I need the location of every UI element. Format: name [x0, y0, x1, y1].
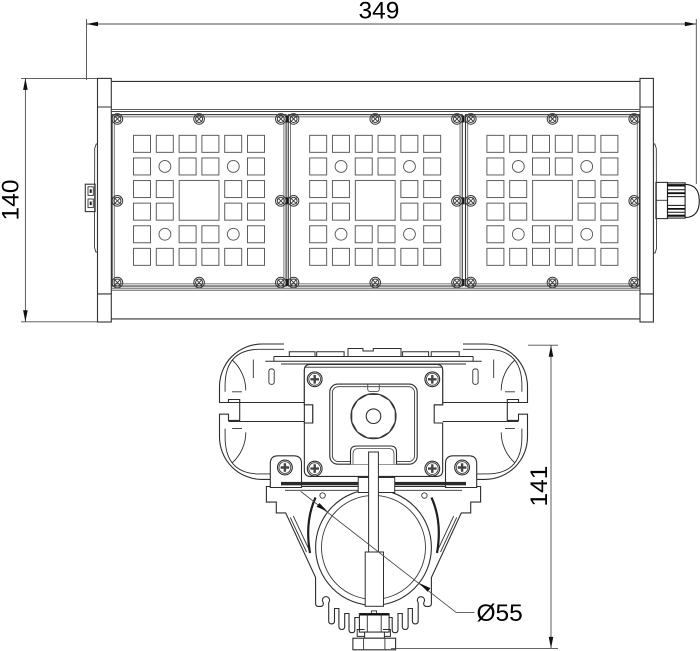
svg-text:Ø55: Ø55	[477, 600, 523, 627]
svg-text:141: 141	[526, 466, 553, 507]
svg-text:140: 140	[0, 180, 25, 221]
svg-text:349: 349	[359, 0, 400, 25]
